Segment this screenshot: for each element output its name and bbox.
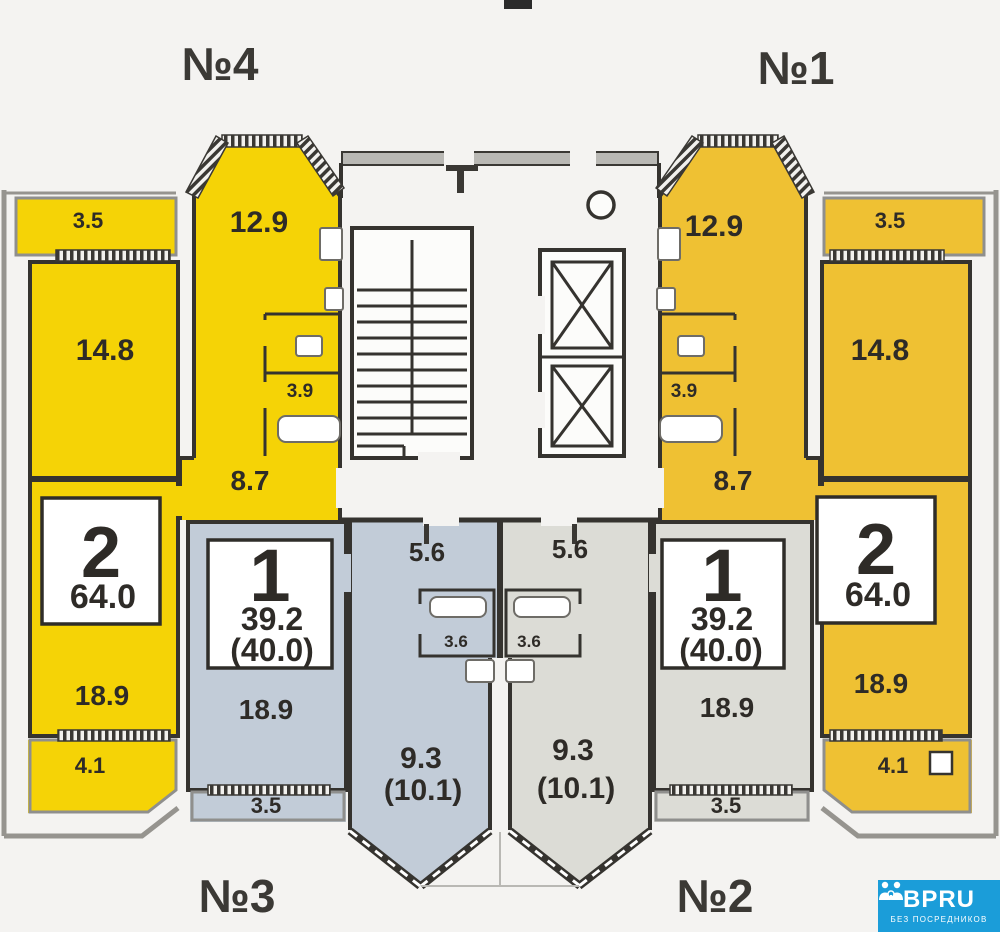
apt4-toilet-icon xyxy=(296,336,322,356)
apt4-living-window xyxy=(58,730,170,741)
apt2-sink-icon xyxy=(506,660,534,682)
core-top-wall xyxy=(342,152,658,165)
apt4-bathtub-icon xyxy=(278,416,340,442)
apt2-number-label: №2 xyxy=(677,870,754,922)
apt3-loggia-total: (10.1) xyxy=(384,774,462,807)
apt2-living-area: 18.9 xyxy=(700,692,755,723)
apt4-bay-window xyxy=(222,135,302,147)
apt3-living-area: 18.9 xyxy=(239,694,294,725)
apt4-sink-icon xyxy=(325,288,343,310)
apt4-bedroom xyxy=(28,260,180,480)
apt4-number-label: №4 xyxy=(182,38,259,90)
apt2-loggia-area: 9.3 xyxy=(552,734,594,767)
apt1-kitchen-area: 12.9 xyxy=(685,210,743,243)
apt1-balcony-top-area: 3.5 xyxy=(875,208,906,233)
entrance-door-mark xyxy=(446,165,478,171)
apt2-hall-area: 5.6 xyxy=(552,534,588,564)
bpru-brand-text: BPRU xyxy=(903,888,975,912)
apt1-bathroom-area: 3.9 xyxy=(671,381,697,402)
bpru-logo: BPRU БЕЗ ПОСРЕДНИКОВ xyxy=(878,880,1000,932)
floor-plan-page: №4 №1 №3 №2 3.5 12.9 14.8 3.9 8.7 2 64.0… xyxy=(0,0,1000,932)
apt4-bedroom-area: 14.8 xyxy=(76,334,134,367)
apt1-balcony-window xyxy=(830,250,944,261)
apt1-bedroom xyxy=(820,260,972,480)
apt4-balcony-bottom-area: 4.1 xyxy=(75,753,106,778)
apt4-balcony-top-area: 3.5 xyxy=(73,208,104,233)
apt1-kitchen-sink-icon xyxy=(658,228,680,260)
apt1-toilet-icon xyxy=(678,336,704,356)
apt4-living-area: 18.9 xyxy=(75,680,130,711)
apt3-sink-icon xyxy=(466,660,494,682)
apt1-sink-icon xyxy=(657,288,675,310)
apt1-total-area: 64.0 xyxy=(845,576,911,614)
apt3-hall-area: 5.6 xyxy=(409,537,445,567)
apt1-living-area: 18.9 xyxy=(854,668,909,699)
apt2-bathtub-icon xyxy=(514,597,570,617)
apt3-total-area: (40.0) xyxy=(230,632,314,668)
bpru-tagline: БЕЗ ПОСРЕДНИКОВ xyxy=(891,915,988,924)
apt4-balcony-window xyxy=(56,250,170,261)
apt4-kitchen-sink-icon xyxy=(320,228,342,260)
apt1-bay-window xyxy=(698,135,778,147)
apt4-kitchen-hall xyxy=(180,141,340,520)
apt2-balcony-area: 3.5 xyxy=(711,793,742,818)
apt4-bathroom-area: 3.9 xyxy=(287,381,313,402)
apt3-bathtub-icon xyxy=(430,597,486,617)
top-crop-mark xyxy=(504,0,532,9)
apt4-hall-area: 8.7 xyxy=(231,465,270,496)
apt1-bedroom-area: 14.8 xyxy=(851,334,909,367)
apt4-kitchen-area: 12.9 xyxy=(230,206,288,239)
garbage-chute-icon xyxy=(588,192,614,218)
apt3-bathroom-area: 3.6 xyxy=(444,632,468,651)
apt1-kitchen-hall xyxy=(660,141,820,520)
apt1-hall-area: 8.7 xyxy=(714,465,753,496)
apt1-number-label: №1 xyxy=(758,42,835,94)
apt1-balcony-box-icon xyxy=(930,752,952,774)
apt1-bathtub-icon xyxy=(660,416,722,442)
apt1-balcony-bottom-area: 4.1 xyxy=(878,753,909,778)
apt4-total-area: 64.0 xyxy=(70,578,136,616)
bpru-people-icon xyxy=(878,880,904,904)
apt3-number-label: №3 xyxy=(199,870,276,922)
apt3-balcony-area: 3.5 xyxy=(251,793,282,818)
apt1-living-window xyxy=(830,730,942,741)
apt2-total-area: (40.0) xyxy=(679,632,763,668)
apt2-loggia-total: (10.1) xyxy=(537,772,615,805)
apt2-bathroom-area: 3.6 xyxy=(517,632,541,651)
floor-plan-svg: №4 №1 №3 №2 3.5 12.9 14.8 3.9 8.7 2 64.0… xyxy=(0,0,1000,932)
apt3-loggia-area: 9.3 xyxy=(400,742,442,775)
